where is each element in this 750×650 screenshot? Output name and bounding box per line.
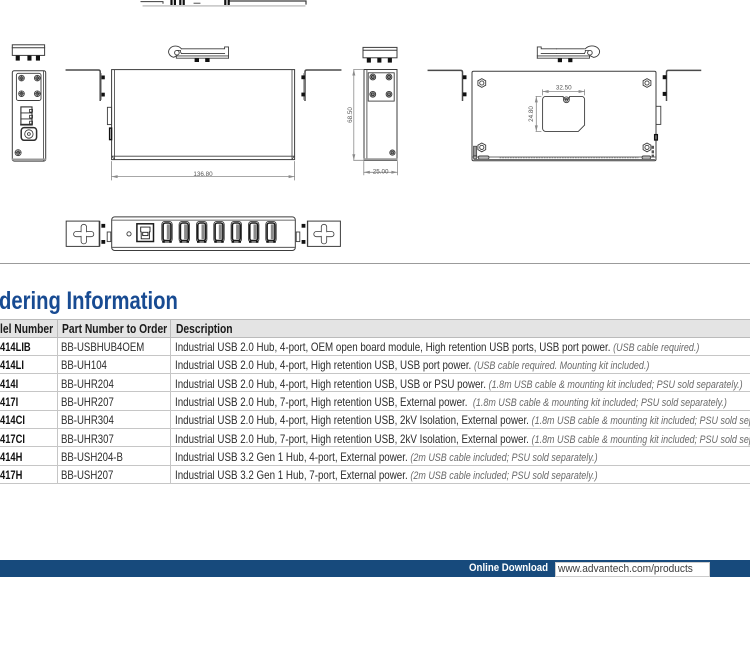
svg-text:32.50: 32.50 [556,85,572,92]
svg-text:25.00: 25.00 [373,169,389,176]
svg-text:68.50: 68.50 [347,107,354,123]
svg-text:24.80: 24.80 [528,106,535,122]
svg-text:136.80: 136.80 [193,171,213,178]
